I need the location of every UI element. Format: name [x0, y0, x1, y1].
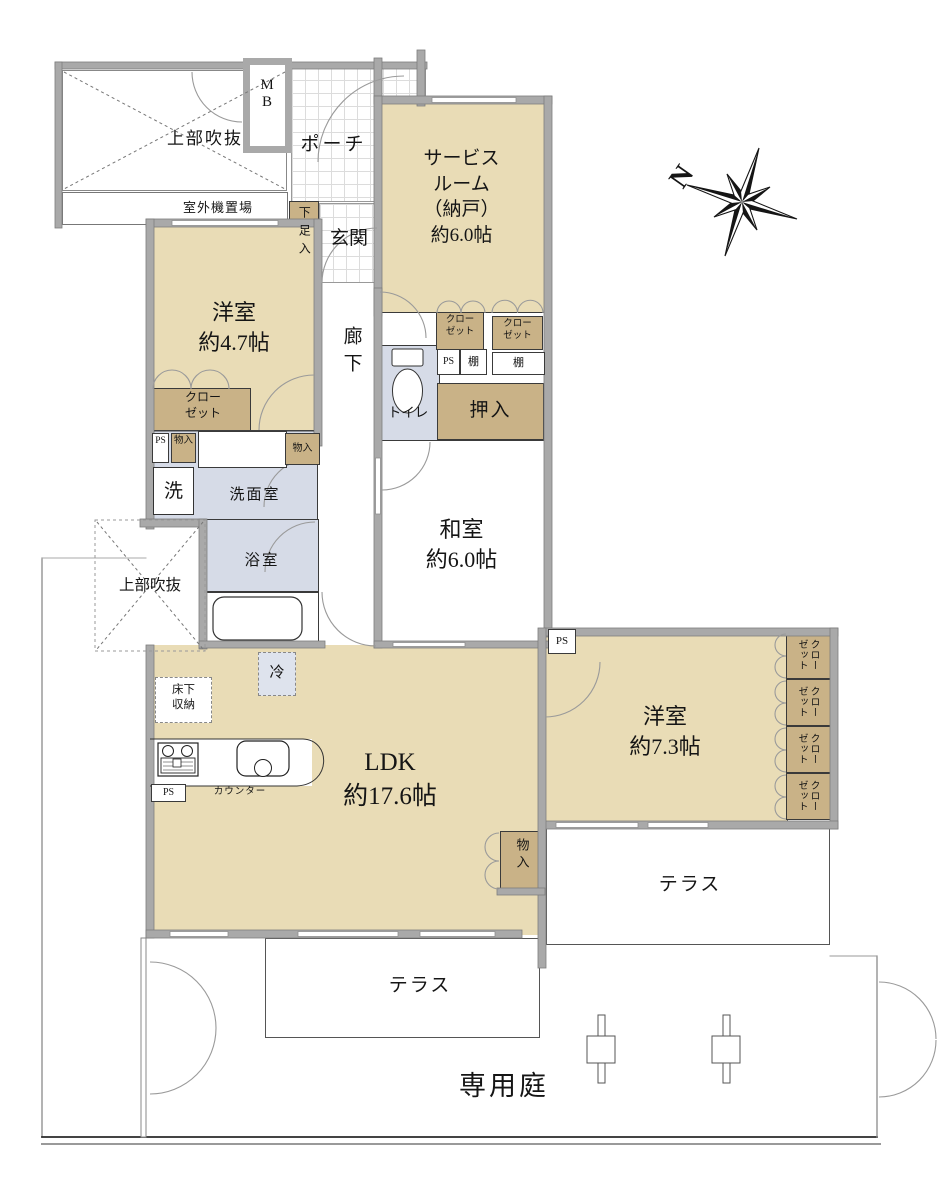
bathtub-area [205, 592, 319, 644]
bathroom-label: 浴室 [205, 551, 319, 572]
void-left-label: 上部吹抜 [95, 576, 205, 597]
toilet-area [378, 345, 440, 442]
compass-north-label: N [655, 150, 709, 204]
west-room-73-label: 洋室 約7.3帖 [545, 702, 785, 761]
ps-box-kitchen: PS [151, 784, 186, 802]
service-room-label: サービス ルーム （納戸） 約6.0帖 [380, 146, 543, 249]
underfloor-label: 床下収納 [155, 683, 212, 713]
ps-box-hall: PS [437, 349, 460, 375]
garden-post-icons [587, 1015, 740, 1083]
toilet-label: トイレ [378, 404, 438, 422]
storage-ldk-label: 物入 [513, 838, 531, 872]
shoe-box-label: 下足入 [296, 206, 312, 260]
terrace-right-label: テラス [620, 872, 760, 898]
private-garden-label: 専用庭 [424, 1068, 584, 1104]
washer-box: 洗 [153, 467, 194, 515]
washroom-label: 洗面室 [200, 485, 310, 505]
closet-v4-label: クローゼット [795, 778, 819, 814]
closet-b-label: クローゼット [492, 319, 543, 343]
terrace-bottom-label: テラス [350, 973, 490, 999]
storage-small-1: 物入 [171, 433, 196, 463]
closet-a-label: クローゼット [436, 315, 484, 339]
ldk-label: LDK 約17.6帖 [285, 746, 495, 814]
closet-v2-label: クローゼット [795, 684, 819, 720]
fridge-label: 冷 [258, 663, 296, 683]
ps-box-washroom: PS [152, 433, 169, 463]
shelf-b-box: 棚 [492, 352, 545, 375]
japanese-room-label: 和室 約6.0帖 [378, 515, 545, 574]
counter-label: カウンター [195, 786, 285, 799]
ps-box-japanese: PS [548, 629, 576, 654]
closet-v1-label: クローゼット [795, 637, 819, 673]
compass-icon [687, 148, 797, 256]
outdoor-unit-label: 室外機置場 [130, 199, 306, 217]
meter-box-label: MB [259, 77, 275, 110]
closet-west47-label: クローゼット [167, 390, 239, 421]
floor-plan: 上部吹抜 室外機置場 MB ポーチ 下足入 玄関 サービス ルーム （納戸） 約… [0, 0, 939, 1200]
corridor-label: 廊下 [338, 326, 364, 380]
oshiire-label: 押入 [437, 398, 544, 424]
vanity-box [198, 431, 287, 468]
entrance-label: 玄関 [320, 226, 378, 252]
closet-v3-label: クローゼット [795, 731, 819, 767]
shelf-a-box: 棚 [460, 349, 487, 375]
west-room-47-label: 洋室 約4.7帖 [150, 298, 318, 357]
storage-small-2: 物入 [285, 433, 320, 465]
